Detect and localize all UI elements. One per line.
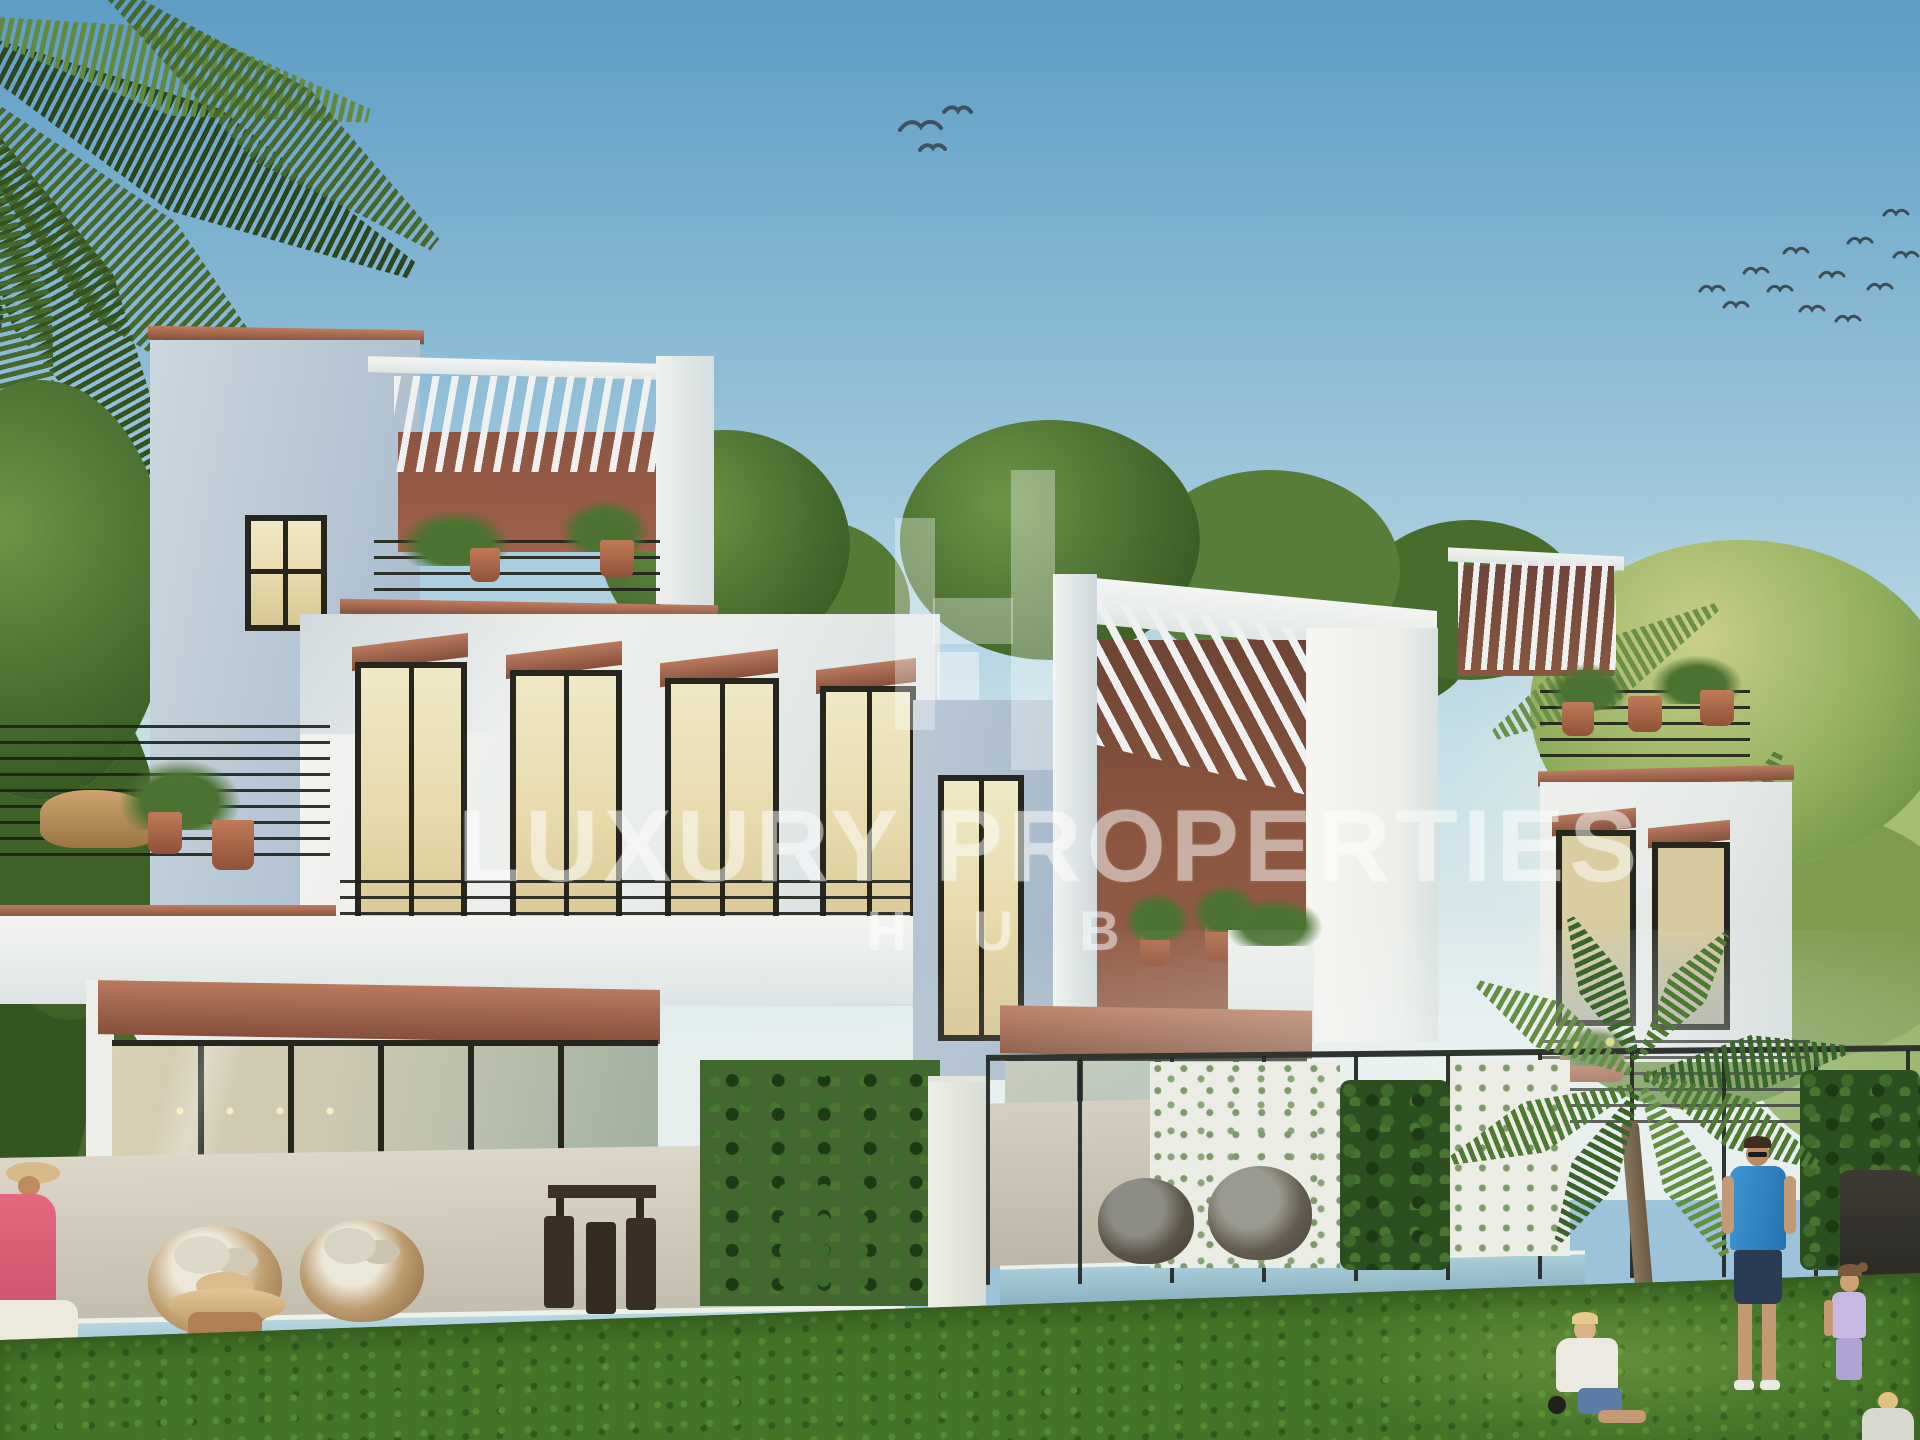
logo-bar-right <box>1011 470 1055 770</box>
fence-white-pillar <box>928 1076 986 1310</box>
fence-ivy-clump <box>1340 1080 1450 1270</box>
groundfloor-left-band <box>98 980 660 1044</box>
logo-crossbar <box>933 598 1013 644</box>
logo-step <box>937 652 979 700</box>
ivy-trellis-panel <box>700 1060 940 1306</box>
watermark-brand-line: LUXURY PROPERTIES <box>90 788 1920 905</box>
left-pergola-slats <box>394 376 662 472</box>
egg-chair-dark <box>1098 1178 1194 1264</box>
right-roof-pot3 <box>1700 690 1734 726</box>
left-pergola-return-wall <box>656 356 714 614</box>
right-roof-pot <box>1562 702 1594 736</box>
left-terrace-pot2 <box>600 540 634 578</box>
render-canvas: LUXURY PROPERTIES HUB <box>0 0 1920 1440</box>
watermark-logo <box>893 470 1058 776</box>
right-pergola-slats <box>1458 562 1616 670</box>
birds-flock-icon <box>1688 195 1920 345</box>
egg-chair-dark-2 <box>1208 1166 1312 1260</box>
birds-small-group-icon <box>880 88 1010 168</box>
right-roof-pot2 <box>1628 696 1662 732</box>
logo-bar-left <box>895 518 935 730</box>
watermark-brand-sub: HUB <box>66 898 1920 963</box>
left-terrace-pot <box>470 548 500 582</box>
egg-chair-rattan-2 <box>300 1220 424 1322</box>
pendant-lights <box>172 1106 372 1116</box>
